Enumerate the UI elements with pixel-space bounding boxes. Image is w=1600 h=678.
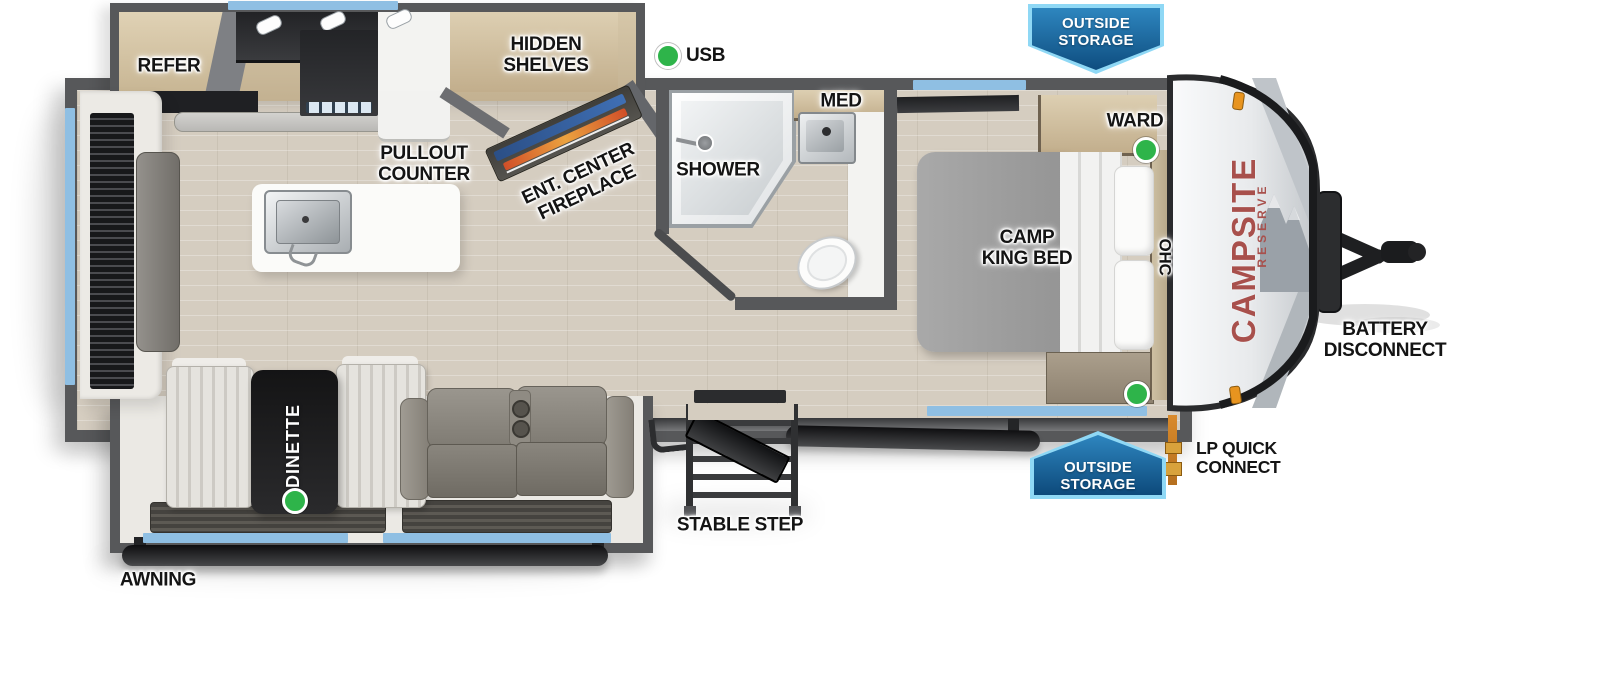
clearance-light-icon (1229, 385, 1242, 404)
grab-handle-icon (648, 416, 687, 454)
usb-indicator-dot (655, 43, 681, 69)
bedroom-window (913, 80, 1026, 90)
outside-storage-badge-top: OUTSIDE STORAGE (1028, 4, 1164, 74)
sofa-armrest-right (604, 396, 634, 498)
dinette-bench-left (166, 366, 254, 508)
step-rung (693, 492, 791, 498)
label-line: PULLOUT (378, 144, 470, 165)
awning-roll (122, 545, 608, 566)
label-ohc: OHC (1155, 239, 1174, 276)
label-hidden-shelves: HIDDEN SHELVES (503, 35, 588, 77)
entry-threshold-plate (694, 390, 786, 403)
hitch-coupler-ball (1408, 243, 1426, 261)
badge-line: OUTSIDE (1064, 459, 1132, 476)
bathroom-right-wall (884, 90, 897, 310)
label-pullout-counter: PULLOUT COUNTER (378, 144, 470, 186)
shower-head-icon (696, 134, 714, 152)
bed-indicator-dot (1124, 381, 1150, 407)
dinette-window-left (143, 533, 348, 543)
dinette-window-right (383, 533, 611, 543)
kitchen-window (228, 1, 398, 10)
sofa-seat-cushion (516, 442, 607, 496)
door-awning-bracket (1008, 419, 1019, 431)
badge-label: OUTSIDE STORAGE (1032, 15, 1160, 50)
door-side-awning-roll (786, 425, 1040, 452)
bath-sink-basin (806, 120, 844, 152)
label-stable-step: STABLE STEP (677, 516, 803, 537)
label-shower: SHOWER (676, 161, 760, 182)
cupholder-icon (512, 400, 530, 418)
floorplan-canvas: CAMPSITE RESERVE OUTSIDE STORAGE OUTSIDE… (0, 0, 1600, 678)
label-awning: AWNING (120, 571, 196, 592)
entry-door-opening (688, 404, 794, 420)
sofa-seat-cushion (427, 444, 518, 498)
label-lp-quick-connect: LP QUICK CONNECT (1196, 439, 1280, 478)
rear-window (65, 108, 75, 385)
rear-table (136, 152, 180, 352)
label-usb: USB (686, 46, 725, 67)
sofa-back-cushion (427, 388, 518, 448)
label-line: SHELVES (503, 56, 588, 77)
badge-line: STORAGE (1060, 476, 1135, 493)
label-med: MED (820, 92, 861, 113)
badge-label: OUTSIDE STORAGE (1034, 459, 1162, 494)
bathroom-left-wall (656, 90, 669, 234)
lp-fitting (1165, 442, 1182, 454)
label-line: BATTERY (1324, 320, 1447, 341)
pillow (1114, 260, 1154, 350)
bath-faucet-icon (822, 127, 831, 136)
cupholder-icon (512, 420, 530, 438)
label-line: DISCONNECT (1324, 341, 1447, 362)
label-battery-disconnect: BATTERY DISCONNECT (1324, 320, 1447, 362)
sofa-armrest-left (400, 398, 430, 500)
label-line: CAMP (982, 228, 1073, 249)
pillow (1114, 166, 1154, 256)
label-line: HIDDEN (503, 35, 588, 56)
label-dinette: DINETTE (284, 404, 304, 488)
label-line: CONNECT (1196, 458, 1280, 477)
badge-fill: OUTSIDE STORAGE (1034, 435, 1162, 495)
lp-fitting (1165, 462, 1182, 476)
sofa-floor-mat (402, 500, 612, 533)
bedroom-tv (897, 95, 1019, 113)
brand-secondary: RESERVE (1255, 145, 1271, 305)
stove-burner-strip (306, 102, 372, 113)
badge-line: STORAGE (1058, 32, 1133, 49)
label-camp-king-bed: CAMP KING BED (982, 228, 1073, 270)
label-refer: REFER (138, 57, 201, 78)
badge-fill: OUTSIDE STORAGE (1032, 8, 1160, 70)
badge-line: OUTSIDE (1062, 15, 1130, 32)
label-line: COUNTER (378, 165, 470, 186)
dinette-indicator-dot (282, 488, 308, 514)
label-line: LP QUICK (1196, 439, 1280, 458)
label-ward: WARD (1107, 112, 1164, 133)
rear-murphy-panel (90, 113, 134, 389)
pullout-counter-surface (378, 91, 450, 142)
bedroom-bottom-window (927, 406, 1147, 416)
label-line: KING BED (982, 249, 1073, 270)
bathroom-bottom-wall (735, 297, 897, 310)
sink-drain-icon (302, 216, 309, 223)
wardrobe-indicator-dot (1133, 137, 1159, 163)
island-sink-basin (276, 200, 340, 244)
